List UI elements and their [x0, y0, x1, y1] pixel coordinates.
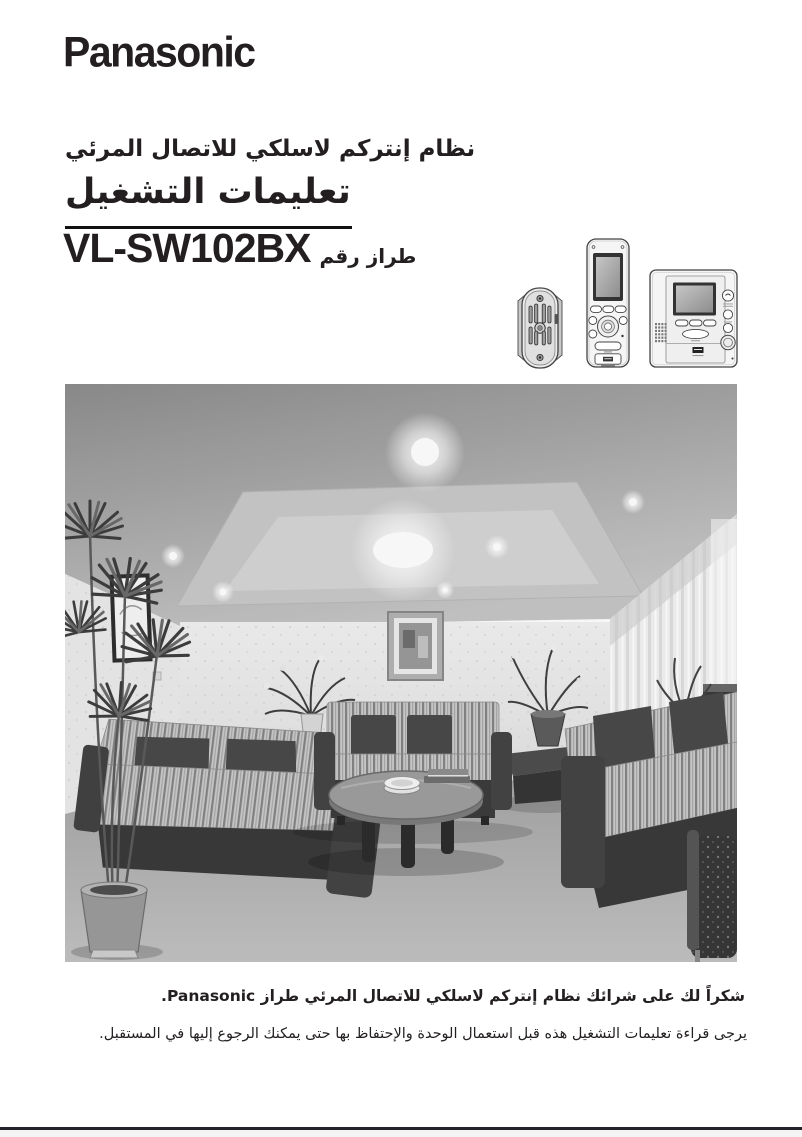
footer-note-line: يرجى قراءة تعليمات التشغيل هذه قبل استعم… [99, 1026, 747, 1042]
manual-cover-page: Panasonic نظام إنتركم لاسلكي للاتصال الم… [0, 0, 802, 1137]
model-row: VL-SW102BX طراز رقم [63, 228, 416, 269]
living-room-photo [65, 384, 737, 962]
document-title: تعليمات التشغيل [65, 172, 351, 212]
model-number: VL-SW102BX [63, 228, 310, 269]
footer-thanks-line: شكراً لك على شرائك نظام إنتركم لاسلكي لل… [161, 987, 745, 1005]
panasonic-logo: Panasonic [63, 28, 255, 77]
main-monitor-illustration [650, 270, 737, 367]
wireless-handset-illustration [587, 239, 629, 367]
device-illustrations [505, 230, 745, 375]
model-label: طراز رقم [319, 246, 416, 269]
page-bottom-edge [0, 1130, 802, 1137]
system-title: نظام إنتركم لاسلكي للاتصال المرئي [65, 136, 475, 162]
door-station-illustration [518, 288, 562, 368]
